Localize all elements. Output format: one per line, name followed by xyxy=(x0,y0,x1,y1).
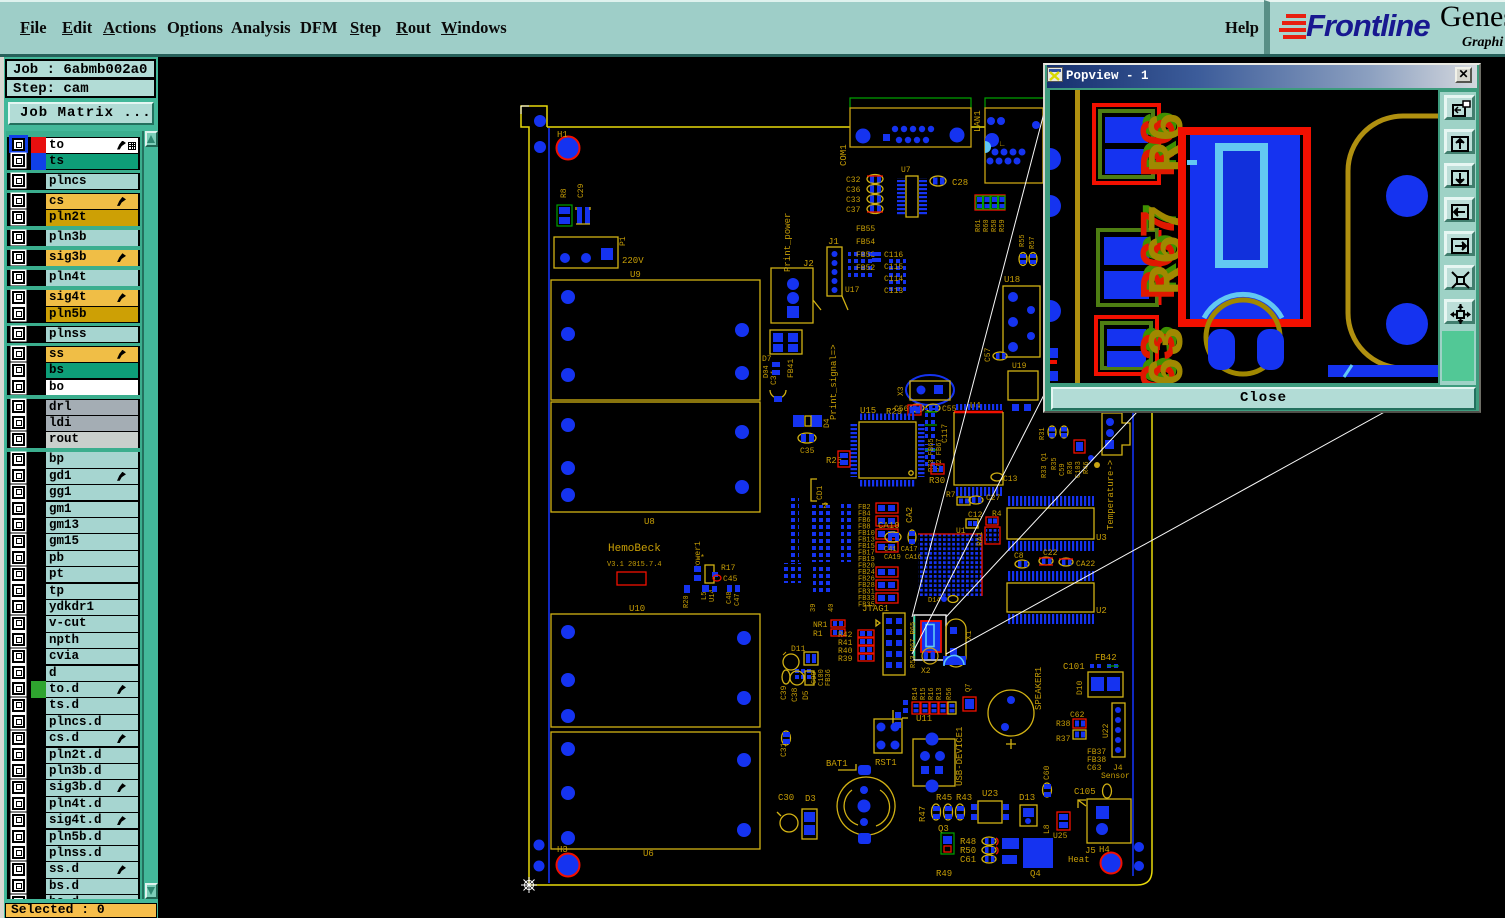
svg-text:H4: H4 xyxy=(1099,845,1110,855)
svg-text:R43: R43 xyxy=(956,793,972,803)
svg-text:R33 Q1: R33 Q1 xyxy=(1041,453,1049,478)
svg-text:C45: C45 xyxy=(723,575,738,584)
svg-text:RA1: RA1 xyxy=(976,531,985,546)
svg-text:C36: C36 xyxy=(846,186,861,195)
svg-text:U8: U8 xyxy=(644,517,655,527)
svg-text:R30: R30 xyxy=(929,476,945,486)
svg-text:C39: C39 xyxy=(780,685,789,700)
svg-text:∟: ∟ xyxy=(1000,140,1005,149)
svg-text:C29: C29 xyxy=(577,183,586,198)
svg-text:X1: X1 xyxy=(965,630,974,640)
svg-text:D13: D13 xyxy=(1019,793,1035,803)
svg-text:U19: U19 xyxy=(1012,362,1027,371)
svg-text:C101: C101 xyxy=(1063,662,1085,672)
svg-text:P1: P1 xyxy=(619,236,628,246)
svg-text:C57: C57 xyxy=(984,347,993,362)
svg-text:V3.1 2015.7.4: V3.1 2015.7.4 xyxy=(607,561,662,569)
svg-text:R15: R15 xyxy=(920,687,928,700)
svg-text:U17: U17 xyxy=(845,286,860,295)
svg-text:C41 CA17: C41 CA17 xyxy=(884,546,918,554)
svg-text:Temperature->: Temperature-> xyxy=(1106,460,1116,530)
svg-text:U23: U23 xyxy=(982,789,998,799)
svg-text:H3: H3 xyxy=(557,845,568,855)
svg-text:FB36: FB36 xyxy=(825,669,833,686)
svg-text:D5: D5 xyxy=(802,690,811,700)
svg-text:C47: C47 xyxy=(734,593,742,606)
svg-text:L8: L8 xyxy=(1043,824,1052,834)
svg-text:CA10: CA10 xyxy=(878,521,900,531)
svg-text:C114: C114 xyxy=(884,275,903,284)
svg-text:SPEAKER1: SPEAKER1 xyxy=(1034,667,1044,710)
svg-text:FB42: FB42 xyxy=(1095,653,1117,663)
svg-text:D10: D10 xyxy=(1076,680,1085,695)
svg-text:R49: R49 xyxy=(936,869,952,879)
svg-text:L5: L5 xyxy=(701,592,709,600)
svg-text:NR1: NR1 xyxy=(813,621,828,630)
svg-text:CD1: CD1 xyxy=(816,485,825,500)
svg-text:R7: R7 xyxy=(946,491,956,500)
svg-text:R31: R31 xyxy=(1039,427,1047,440)
svg-text:R4: R4 xyxy=(992,510,1002,519)
svg-text:C103: C103 xyxy=(1075,461,1083,478)
svg-text:63 R67 R6: 63 R67 R6 xyxy=(1141,112,1198,383)
svg-text:C37: C37 xyxy=(846,206,861,215)
svg-text:HemoBeck: HemoBeck xyxy=(608,543,661,555)
svg-text:C30: C30 xyxy=(778,793,794,803)
svg-text:Sensor: Sensor xyxy=(1101,772,1130,781)
svg-text:U6: U6 xyxy=(643,849,654,859)
svg-text:R55: R55 xyxy=(1019,234,1027,247)
svg-text:Print_power: Print_power xyxy=(783,213,793,272)
svg-text:U22: U22 xyxy=(1102,723,1111,738)
svg-text:C48: C48 xyxy=(726,591,734,604)
svg-text:C13: C13 xyxy=(1003,475,1018,484)
svg-text:U2: U2 xyxy=(1096,606,1107,616)
svg-text:*: * xyxy=(700,554,705,563)
svg-text:C33: C33 xyxy=(846,196,861,205)
svg-text:R36: R36 xyxy=(1067,461,1075,474)
svg-text:Heat: Heat xyxy=(1068,855,1090,865)
svg-text:FB52: FB52 xyxy=(856,264,875,273)
svg-text:C63: C63 xyxy=(1087,764,1102,773)
svg-text:R14: R14 xyxy=(912,687,920,700)
svg-text:COM1: COM1 xyxy=(839,144,849,166)
svg-text:D7: D7 xyxy=(762,355,772,364)
svg-text:X3: X3 xyxy=(897,386,906,396)
svg-text:X2: X2 xyxy=(921,667,931,676)
svg-text:U25: U25 xyxy=(1053,832,1068,841)
svg-text:Print_signal=>: Print_signal=> xyxy=(829,344,839,420)
svg-text:U10: U10 xyxy=(629,604,645,614)
svg-text:R37: R37 xyxy=(1056,735,1071,744)
svg-text:Q7: Q7 xyxy=(965,684,973,692)
svg-text:CA19 CA16: CA19 CA16 xyxy=(884,554,922,562)
svg-text:C59: C59 xyxy=(1059,463,1067,476)
svg-text:FB54: FB54 xyxy=(856,238,875,247)
svg-text:C61: C61 xyxy=(960,855,976,865)
svg-text:C38: C38 xyxy=(791,687,800,702)
svg-text:R8: R8 xyxy=(560,188,569,198)
svg-text:U7: U7 xyxy=(901,166,911,175)
svg-text:CA22: CA22 xyxy=(1076,560,1095,569)
svg-text:RST1: RST1 xyxy=(875,758,897,768)
svg-text:D3: D3 xyxy=(805,794,816,804)
svg-text:D4: D4 xyxy=(823,418,832,428)
svg-text:FB55: FB55 xyxy=(856,225,875,234)
svg-text:U3: U3 xyxy=(1096,533,1107,543)
svg-text:BAT1: BAT1 xyxy=(826,759,848,769)
svg-text:USB-DEVICE1: USB-DEVICE1 xyxy=(955,727,965,786)
svg-text:R47: R47 xyxy=(918,806,928,822)
svg-text:R39: R39 xyxy=(838,655,853,664)
svg-text:C115: C115 xyxy=(884,263,903,272)
svg-text:C35: C35 xyxy=(800,447,815,456)
svg-text:R56: R56 xyxy=(946,687,954,700)
svg-text:R17: R17 xyxy=(721,564,736,573)
svg-text:R59: R59 xyxy=(999,219,1007,232)
svg-text:R26: R26 xyxy=(826,456,842,466)
svg-text:CA2: CA2 xyxy=(905,507,915,523)
svg-text:J1: J1 xyxy=(828,237,839,247)
svg-text:U18: U18 xyxy=(1004,275,1020,285)
svg-text:220V: 220V xyxy=(622,256,644,266)
svg-text:C105: C105 xyxy=(1074,787,1096,797)
svg-text:40: 40 xyxy=(828,604,836,612)
svg-text:R61: R61 xyxy=(975,219,983,232)
svg-text:C60: C60 xyxy=(1043,765,1052,780)
svg-text:U9: U9 xyxy=(630,270,641,280)
svg-text:R16: R16 xyxy=(928,687,936,700)
svg-text:U11: U11 xyxy=(916,714,932,724)
svg-text:R57: R57 xyxy=(1029,236,1037,249)
svg-text:FB41: FB41 xyxy=(787,359,796,378)
svg-text:R35: R35 xyxy=(1051,457,1059,470)
svg-text:C116: C116 xyxy=(884,251,903,260)
svg-text:R45: R45 xyxy=(936,793,952,803)
svg-text:H1: H1 xyxy=(557,130,568,140)
svg-text:C28: C28 xyxy=(952,178,968,188)
svg-text:R60: R60 xyxy=(983,219,991,232)
svg-text:R58: R58 xyxy=(991,219,999,232)
svg-text:Q4: Q4 xyxy=(1030,869,1041,879)
svg-text:39: 39 xyxy=(810,604,818,612)
svg-text:C113: C113 xyxy=(884,287,903,296)
svg-text:C32: C32 xyxy=(846,176,861,185)
svg-text:D04: D04 xyxy=(763,365,771,378)
svg-text:R20: R20 xyxy=(683,595,691,608)
svg-text:R1: R1 xyxy=(813,630,823,639)
svg-text:R13: R13 xyxy=(936,687,944,700)
svg-text:R38: R38 xyxy=(1056,720,1071,729)
svg-text:LAN1: LAN1 xyxy=(973,110,983,132)
